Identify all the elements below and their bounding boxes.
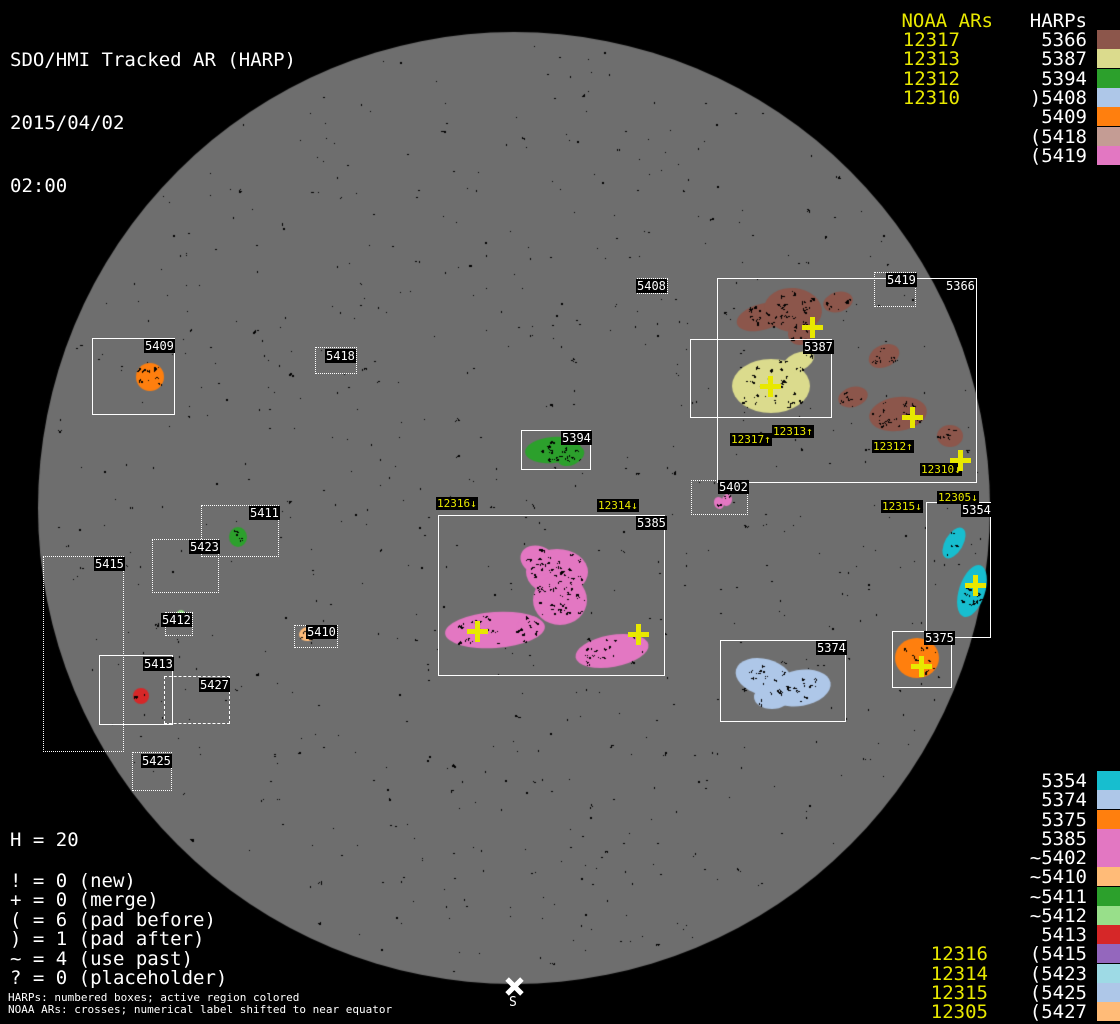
stats-item: ~ = 4 (use past) — [10, 950, 193, 969]
harp-box-label-5412: 5412 — [161, 613, 192, 627]
harp-box-label-5409: 5409 — [144, 339, 175, 353]
legend-harp-5375: 5375 — [997, 811, 1087, 830]
harp-box-label-5375: 5375 — [924, 631, 955, 645]
harp-color-swatch — [1097, 790, 1120, 809]
legend-harp-5415: (5415 — [997, 945, 1087, 964]
time-label: 02:00 — [10, 176, 296, 197]
harp-color-swatch — [1097, 925, 1120, 944]
stats-item: ) = 1 (pad after) — [10, 930, 204, 949]
harp-box-label-5418: 5418 — [325, 349, 356, 363]
legend-harp-5354: 5354 — [997, 772, 1087, 791]
harp-color-swatch — [1097, 69, 1120, 88]
harp-box-label-5374: 5374 — [816, 641, 847, 655]
legend-harp-5425: (5425 — [997, 984, 1087, 1003]
harp-color-swatch — [1097, 127, 1120, 146]
harp-color-swatch — [1097, 848, 1120, 867]
legend-noaa-12313: 12313 — [875, 50, 960, 69]
harp-visualization: SDO/HMI Tracked AR (HARP) 2015/04/02 02:… — [0, 0, 1120, 1024]
noaa-ar-label-12314: 12314↓ — [597, 499, 639, 512]
harp-color-swatch — [1097, 887, 1120, 906]
noaa-cross-icon — [467, 621, 488, 642]
noaa-ar-label-12313: 12313↑ — [772, 425, 814, 438]
legend-noaa-12317: 12317 — [875, 31, 960, 50]
harp-box-label-5366: 5366 — [945, 279, 976, 293]
harp-color-swatch — [1097, 30, 1120, 49]
harp-box-label-5354: 5354 — [961, 503, 992, 517]
harp-color-swatch — [1097, 107, 1120, 126]
harp-box-label-5413: 5413 — [143, 657, 174, 671]
harp-color-swatch — [1097, 964, 1120, 983]
harp-box-5385 — [438, 515, 665, 676]
noaa-cross-icon — [760, 376, 781, 397]
harp-box-label-5394: 5394 — [561, 431, 592, 445]
south-pole-label: S — [509, 996, 517, 1009]
title-block: SDO/HMI Tracked AR (HARP) 2015/04/02 02:… — [10, 8, 296, 239]
noaa-ar-label-12317: 12317↑ — [730, 433, 772, 446]
noaa-cross-icon — [628, 624, 649, 645]
stats-item: ? = 0 (placeholder) — [10, 969, 227, 988]
harp-color-swatch — [1097, 944, 1120, 963]
legend-harp-5418: (5418 — [997, 128, 1087, 147]
harp-color-swatch — [1097, 810, 1120, 829]
legend-harp-5419: (5419 — [997, 147, 1087, 166]
legend-harp-5427: (5427 — [997, 1003, 1087, 1022]
noaa-cross-icon — [950, 450, 971, 471]
legend-harp-5387: 5387 — [997, 50, 1087, 69]
harp-color-swatch — [1097, 983, 1120, 1002]
page-title: SDO/HMI Tracked AR (HARP) — [10, 50, 296, 71]
legend-noaa-12312: 12312 — [875, 70, 960, 89]
harp-count: H = 20 — [10, 831, 79, 850]
harp-box-label-5423: 5423 — [189, 540, 220, 554]
harp-box-label-5402: 5402 — [718, 480, 749, 494]
legend-noaa-12310: 12310 — [875, 89, 960, 108]
harp-box-label-5385: 5385 — [636, 516, 667, 530]
south-pole-x-icon — [505, 977, 524, 996]
footer-line2: NOAA ARs: crosses; numerical label shift… — [8, 1004, 392, 1016]
stats-item: + = 0 (merge) — [10, 891, 159, 910]
noaa-ar-label-12316: 12316↓ — [436, 497, 478, 510]
harp-color-swatch — [1097, 867, 1120, 886]
harp-box-label-5408: 5408 — [636, 279, 667, 293]
noaa-cross-icon — [902, 407, 923, 428]
legend-harp-5409: 5409 — [997, 108, 1087, 127]
noaa-cross-icon — [965, 575, 986, 596]
legend-harp-5411: ~5411 — [997, 888, 1087, 907]
harp-box-label-5387: 5387 — [803, 340, 834, 354]
legend-noaa-12315: 12315 — [903, 984, 988, 1003]
legend-harp-5423: (5423 — [997, 965, 1087, 984]
noaa-ar-label-12305: 12305↓ — [937, 491, 979, 504]
harp-box-5354 — [926, 502, 991, 638]
harp-color-swatch — [1097, 906, 1120, 925]
legend-harp-5385: 5385 — [997, 830, 1087, 849]
harp-box-label-5425: 5425 — [141, 754, 172, 768]
stats-item: ( = 6 (pad before) — [10, 911, 216, 930]
legend-harp-5408: )5408 — [997, 89, 1087, 108]
legend-noaa-12305: 12305 — [903, 1003, 988, 1022]
legend-harp-5366: 5366 — [997, 31, 1087, 50]
stats-item: ! = 0 (new) — [10, 872, 136, 891]
harp-box-label-5410: 5410 — [306, 625, 337, 639]
legend-harp-5412: ~5412 — [997, 907, 1087, 926]
noaa-ar-label-12315: 12315↓ — [881, 500, 923, 513]
legend-noaa-12316: 12316 — [903, 945, 988, 964]
harp-color-swatch — [1097, 829, 1120, 848]
harp-color-swatch — [1097, 146, 1120, 165]
harp-box-label-5415: 5415 — [94, 557, 125, 571]
legend-harp-5402: ~5402 — [997, 849, 1087, 868]
harp-box-label-5427: 5427 — [199, 678, 230, 692]
legend-harp-5413: 5413 — [997, 926, 1087, 945]
legend-noaa-12314: 12314 — [903, 965, 988, 984]
harp-color-swatch — [1097, 771, 1120, 790]
harp-color-swatch — [1097, 49, 1120, 68]
legend-harp-5374: 5374 — [997, 791, 1087, 810]
noaa-ar-label-12312: 12312↑ — [872, 440, 914, 453]
noaa-cross-icon — [911, 656, 932, 677]
noaa-cross-icon — [802, 317, 823, 338]
legend-harp-5394: 5394 — [997, 70, 1087, 89]
harp-color-swatch — [1097, 88, 1120, 107]
harp-color-swatch — [1097, 1002, 1120, 1021]
harp-box-label-5419: 5419 — [886, 273, 917, 287]
harp-box-label-5411: 5411 — [249, 506, 280, 520]
date-label: 2015/04/02 — [10, 113, 296, 134]
legend-harp-5410: ~5410 — [997, 868, 1087, 887]
